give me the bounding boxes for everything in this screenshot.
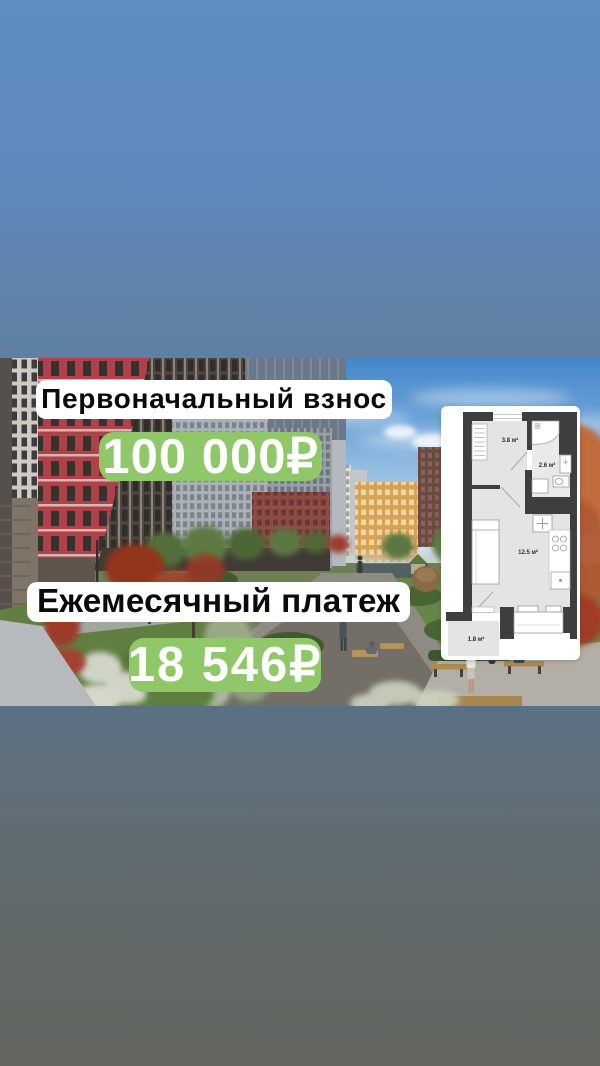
svg-text:12.5 м²: 12.5 м² bbox=[518, 549, 538, 556]
svg-text:1.8 м²: 1.8 м² bbox=[468, 636, 484, 643]
svg-text:3.8 м²: 3.8 м² bbox=[502, 437, 518, 444]
svg-text:2.6 м²: 2.6 м² bbox=[539, 462, 555, 469]
